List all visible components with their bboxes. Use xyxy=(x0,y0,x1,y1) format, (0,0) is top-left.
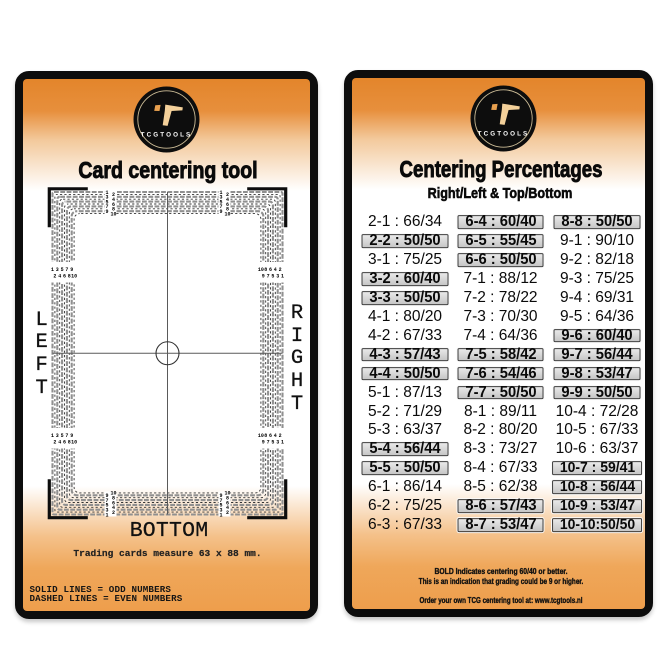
svg-text:10: 10 xyxy=(258,267,264,273)
svg-text:9: 9 xyxy=(219,493,222,499)
svg-text:3: 3 xyxy=(56,433,59,439)
svg-text:1: 1 xyxy=(281,273,284,279)
svg-text:5: 5 xyxy=(61,267,64,273)
svg-text:9: 9 xyxy=(70,433,73,439)
svg-text:10: 10 xyxy=(258,433,264,439)
svg-text:3: 3 xyxy=(276,273,279,279)
svg-text:5: 5 xyxy=(271,273,274,279)
svg-text:2: 2 xyxy=(279,433,282,439)
svg-text:5: 5 xyxy=(61,433,64,439)
svg-text:2: 2 xyxy=(279,267,282,273)
svg-text:4: 4 xyxy=(58,273,61,279)
svg-text:10: 10 xyxy=(224,491,230,497)
svg-text:4: 4 xyxy=(58,439,61,445)
svg-text:8: 8 xyxy=(264,267,267,273)
svg-text:2: 2 xyxy=(53,439,56,445)
svg-text:3: 3 xyxy=(56,267,59,273)
svg-text:9: 9 xyxy=(262,273,265,279)
svg-text:9: 9 xyxy=(105,493,108,499)
svg-text:1: 1 xyxy=(281,439,284,445)
svg-text:10: 10 xyxy=(71,439,77,445)
svg-text:9: 9 xyxy=(70,267,73,273)
svg-text:7: 7 xyxy=(65,267,68,273)
svg-text:5: 5 xyxy=(271,439,274,445)
svg-text:4: 4 xyxy=(274,433,277,439)
svg-text:6: 6 xyxy=(63,273,66,279)
svg-text:1: 1 xyxy=(51,267,54,273)
svg-text:10: 10 xyxy=(110,211,116,217)
svg-text:1: 1 xyxy=(51,433,54,439)
svg-text:10: 10 xyxy=(110,491,116,497)
svg-text:6: 6 xyxy=(269,433,272,439)
svg-text:7: 7 xyxy=(65,433,68,439)
svg-text:9: 9 xyxy=(105,209,108,215)
svg-text:10: 10 xyxy=(224,211,230,217)
svg-text:7: 7 xyxy=(267,439,270,445)
svg-text:3: 3 xyxy=(276,439,279,445)
svg-text:4: 4 xyxy=(274,267,277,273)
svg-text:10: 10 xyxy=(71,273,77,279)
svg-text:6: 6 xyxy=(63,439,66,445)
svg-text:9: 9 xyxy=(219,209,222,215)
svg-text:9: 9 xyxy=(262,439,265,445)
svg-text:8: 8 xyxy=(264,433,267,439)
svg-text:6: 6 xyxy=(269,267,272,273)
svg-text:2: 2 xyxy=(53,273,56,279)
svg-text:7: 7 xyxy=(267,273,270,279)
